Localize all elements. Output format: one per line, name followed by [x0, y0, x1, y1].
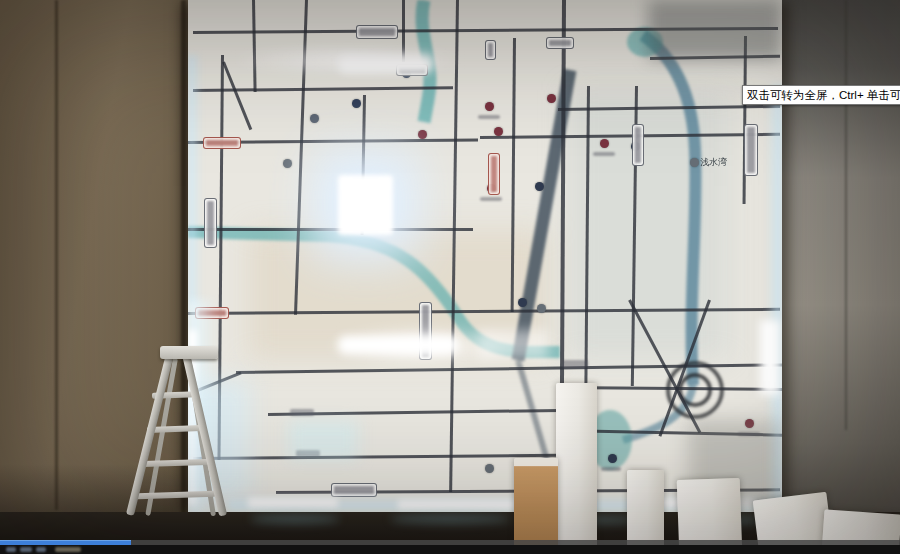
map-label-pill — [485, 40, 496, 60]
wall-seam-right — [845, 0, 847, 430]
video-frame[interactable]: 浅水湾 双击可转 — [0, 0, 900, 554]
ladder-top-cap — [160, 346, 218, 359]
floor-reflection — [390, 514, 510, 524]
fullscreen-tooltip: 双击可转为全屏，Ctrl+ 单击可转为 — [742, 85, 900, 105]
right-wall — [782, 0, 900, 554]
illuminated-area-map: 浅水湾 — [188, 0, 782, 514]
map-label-pill — [562, 360, 588, 368]
player-control-glyph — [55, 547, 81, 552]
map-label-pill — [296, 450, 320, 457]
landmark-icon — [494, 127, 503, 136]
landmark-icon — [283, 159, 292, 168]
map-label-pill — [744, 124, 758, 176]
foreground-pillar — [556, 383, 597, 554]
map-road — [188, 228, 473, 231]
wall-map-gap — [181, 0, 186, 514]
landmark-icon — [352, 99, 361, 108]
landmark-caption — [480, 197, 502, 201]
landmark-icon — [600, 139, 609, 148]
map-label-pill — [419, 302, 432, 360]
map-rivers — [188, 0, 782, 514]
map-label-pill — [204, 198, 217, 248]
landmark-caption — [601, 467, 621, 471]
map-label-pill — [290, 409, 314, 416]
landmark-caption — [478, 115, 500, 119]
player-control-glyph — [20, 547, 32, 552]
landmark-icon — [310, 114, 319, 123]
landmark-icon — [485, 102, 494, 111]
player-control-glyph — [36, 547, 46, 552]
map-label-pill — [632, 124, 644, 166]
landmark-caption — [593, 152, 615, 156]
map-road — [402, 0, 405, 62]
map-area-label: 浅水湾 — [700, 156, 727, 169]
landmark-icon — [535, 182, 544, 191]
landmark-icon — [547, 94, 556, 103]
map-label-pill — [331, 483, 377, 497]
wall-seam — [55, 0, 58, 510]
landmark-caption — [738, 432, 760, 436]
map-label-pill — [488, 153, 500, 195]
landmark-icon — [485, 464, 494, 473]
map-label-pill — [396, 64, 428, 76]
landmark-icon — [537, 304, 546, 313]
left-wall — [0, 0, 192, 554]
video-progress-bar[interactable] — [0, 540, 900, 545]
landmark-icon — [608, 454, 617, 463]
player-controls-cropped — [0, 545, 900, 554]
player-control-glyph — [6, 547, 16, 552]
map-label-pill — [546, 37, 574, 49]
landmark-icon — [690, 158, 699, 167]
map-label-pill — [203, 137, 241, 149]
floor-reflection — [250, 514, 340, 524]
landmark-icon — [745, 419, 754, 428]
map-label-pill — [195, 307, 229, 319]
landmark-icon — [518, 298, 527, 307]
map-label-pill — [356, 25, 398, 39]
progress-fill — [0, 540, 131, 545]
landmark-icon — [418, 130, 427, 139]
